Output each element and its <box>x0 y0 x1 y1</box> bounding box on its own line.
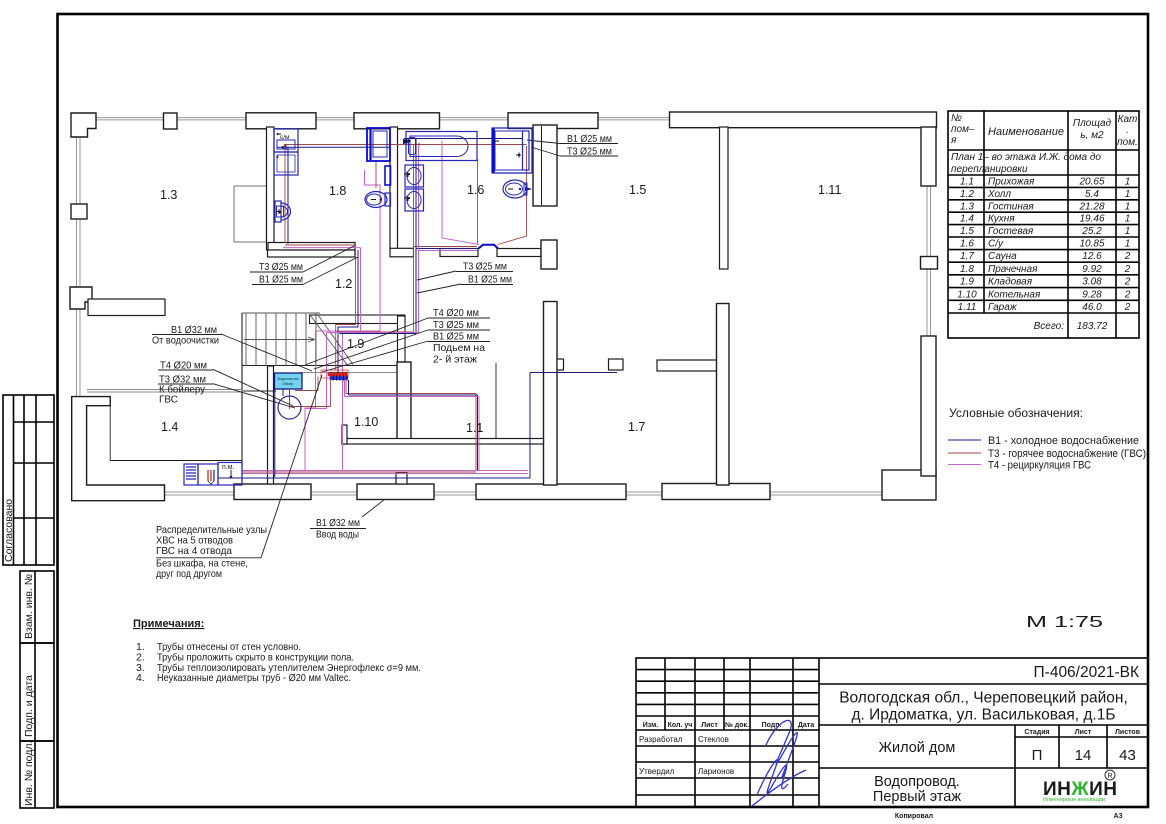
svg-text:12.6: 12.6 <box>1082 251 1102 262</box>
svg-text:ГВС на 4 отвода: ГВС на 4 отвода <box>156 545 232 557</box>
svg-text:1.10: 1.10 <box>957 289 977 300</box>
svg-text:14: 14 <box>1075 747 1092 764</box>
svg-text:19.46: 19.46 <box>1079 214 1104 225</box>
svg-text:1.11: 1.11 <box>958 302 977 313</box>
svg-text:Инженерные инновации: Инженерные инновации <box>1043 797 1105 803</box>
svg-text:В1 Ø25 мм: В1 Ø25 мм <box>468 274 512 286</box>
svg-text:1: 1 <box>1125 177 1131 188</box>
svg-text:Первый этаж: Первый этаж <box>873 789 961 805</box>
svg-text:1.4: 1.4 <box>960 214 974 225</box>
svg-text:ГВС: ГВС <box>159 394 178 406</box>
svg-text:2- й этаж: 2- й этаж <box>433 354 477 366</box>
svg-text:1.6: 1.6 <box>467 183 484 197</box>
svg-text:5.4: 5.4 <box>1085 189 1099 200</box>
svg-text:Ввод воды: Ввод воды <box>316 529 359 541</box>
svg-text:1.1: 1.1 <box>960 177 974 188</box>
svg-text:П-406/2021-ВК: П-406/2021-ВК <box>1034 664 1139 681</box>
svg-text:Кухня: Кухня <box>988 214 1015 225</box>
svg-text:пом–: пом– <box>951 124 975 135</box>
svg-text:М 1:75: М 1:75 <box>1026 614 1103 631</box>
svg-text:3.08: 3.08 <box>1082 277 1102 288</box>
svg-text:№: № <box>951 113 962 124</box>
svg-text:Т3 Ø25 мм: Т3 Ø25 мм <box>463 261 507 273</box>
svg-text:Утвердил: Утвердил <box>639 767 675 776</box>
svg-text:В1 Ø32 мм: В1 Ø32 мм <box>316 517 360 529</box>
svg-text:я: я <box>950 135 957 146</box>
svg-text:1.4: 1.4 <box>161 420 178 434</box>
svg-text:1.8: 1.8 <box>960 264 974 275</box>
svg-text:9.28: 9.28 <box>1082 289 1102 300</box>
svg-text:Площад: Площад <box>1073 118 1112 129</box>
svg-text:Примечания:: Примечания: <box>133 618 204 630</box>
svg-text:2: 2 <box>1124 277 1131 288</box>
svg-text:4.: 4. <box>136 672 145 684</box>
svg-text:Стадия: Стадия <box>1024 729 1049 736</box>
svg-text:пом.: пом. <box>1117 137 1138 148</box>
svg-text:Инв. № подл.: Инв. № подл. <box>23 741 35 806</box>
svg-text:2: 2 <box>1124 264 1131 275</box>
svg-text:9.92: 9.92 <box>1082 264 1102 275</box>
svg-text:П: П <box>1032 747 1043 764</box>
svg-text:Согласовано: Согласовано <box>3 499 15 562</box>
svg-text:Взам. инв. №: Взам. инв. № <box>23 574 35 639</box>
svg-text:Копировал: Копировал <box>895 813 933 820</box>
svg-text:ь, м2: ь, м2 <box>1080 130 1104 141</box>
svg-text:2: 2 <box>1124 302 1131 313</box>
svg-text:Т3 Ø25 мм: Т3 Ø25 мм <box>433 319 479 331</box>
svg-text:д. Ирдоматка, ул. Васильковая,: д. Ирдоматка, ул. Васильковая, д.1Б <box>851 707 1115 724</box>
svg-text:Гейзер: Гейзер <box>282 382 293 386</box>
svg-text:Кладовая: Кладовая <box>988 277 1033 288</box>
svg-text:с/м: с/м <box>280 134 290 141</box>
svg-text:Наименование: Наименование <box>988 126 1064 138</box>
svg-text:Условные обозначения:: Условные обозначения: <box>949 406 1083 420</box>
svg-text:Гостиная: Гостиная <box>988 201 1034 212</box>
svg-text:В1 Ø25 мм: В1 Ø25 мм <box>433 331 479 343</box>
svg-text:1: 1 <box>1125 214 1131 225</box>
svg-text:Водоочистка: Водоочистка <box>278 377 299 381</box>
svg-text:Всего:: Всего: <box>1034 321 1065 332</box>
svg-text:От водоочистки: От водоочистки <box>152 335 219 347</box>
svg-text:Листов: Листов <box>1115 729 1141 736</box>
svg-text:21.28: 21.28 <box>1078 201 1104 212</box>
svg-text:25.2: 25.2 <box>1081 226 1102 237</box>
svg-text:Лист: Лист <box>701 722 718 729</box>
svg-text:Подп. и дата: Подп. и дата <box>23 675 35 737</box>
svg-text:Вологодская обл., Череповецкий: Вологодская обл., Череповецкий район, <box>839 690 1128 707</box>
svg-text:Кат: Кат <box>1118 114 1138 125</box>
svg-text:1.3: 1.3 <box>960 201 974 212</box>
svg-text:46.0: 46.0 <box>1082 302 1102 313</box>
svg-text:Т3 - горячее водоснабжение (ГВ: Т3 - горячее водоснабжение (ГВС) <box>988 448 1146 460</box>
svg-text:Прихожая: Прихожая <box>988 177 1035 188</box>
svg-text:1: 1 <box>1125 239 1131 250</box>
svg-text:10.85: 10.85 <box>1079 239 1104 250</box>
svg-text:2: 2 <box>1124 289 1131 300</box>
svg-text:В1 Ø25 мм: В1 Ø25 мм <box>259 274 303 286</box>
svg-text:1.2: 1.2 <box>960 189 974 200</box>
svg-text:Прачечная: Прачечная <box>988 264 1038 275</box>
svg-text:Изм.: Изм. <box>643 722 659 729</box>
svg-text:№ док.: № док. <box>725 721 749 729</box>
svg-text:1.5: 1.5 <box>629 183 646 197</box>
svg-text:1.8: 1.8 <box>329 184 346 198</box>
svg-text:Ларионов: Ларионов <box>698 767 734 776</box>
svg-text:1: 1 <box>1125 226 1131 237</box>
svg-text:1.9: 1.9 <box>960 277 974 288</box>
svg-text:С/у: С/у <box>988 239 1004 250</box>
svg-text:183.72: 183.72 <box>1077 321 1108 332</box>
svg-text:.: . <box>1126 125 1129 136</box>
svg-text:1: 1 <box>1125 201 1131 212</box>
svg-text:Лист: Лист <box>1075 729 1092 736</box>
svg-text:1.1: 1.1 <box>466 421 483 435</box>
svg-text:1.7: 1.7 <box>628 420 645 434</box>
svg-text:Неуказанные диаметры труб - Ø2: Неуказанные диаметры труб - Ø20 мм Valte… <box>157 672 351 684</box>
svg-text:А3: А3 <box>1114 813 1123 820</box>
svg-text:Кол. уч: Кол. уч <box>668 722 693 729</box>
svg-text:1.7: 1.7 <box>960 251 974 262</box>
svg-text:План 1– во этажа И.Ж. дома: План 1– во этажа И.Ж. дома до <box>951 152 1101 163</box>
svg-text:п.м.: п.м. <box>222 464 235 471</box>
svg-text:43: 43 <box>1119 747 1136 764</box>
svg-text:друг под другом: друг под другом <box>156 568 222 580</box>
svg-text:Стеклов: Стеклов <box>698 735 729 744</box>
svg-text:перепланировки: перепланировки <box>951 164 1028 175</box>
svg-text:Холл: Холл <box>987 189 1011 200</box>
svg-text:2: 2 <box>1124 251 1131 262</box>
svg-text:1.3: 1.3 <box>160 188 177 202</box>
svg-text:R: R <box>1107 773 1112 780</box>
svg-text:Сауна: Сауна <box>988 251 1017 262</box>
svg-text:Гараж: Гараж <box>988 302 1018 313</box>
svg-text:1.5: 1.5 <box>960 226 974 237</box>
svg-text:Дата: Дата <box>798 722 814 729</box>
svg-text:Гостевая: Гостевая <box>988 226 1034 237</box>
svg-text:Водопровод.: Водопровод. <box>874 774 960 790</box>
svg-text:Подьем на: Подьем на <box>433 342 485 354</box>
svg-text:Т4 - рециркуляция ГВС: Т4 - рециркуляция ГВС <box>988 460 1091 472</box>
svg-text:1.2: 1.2 <box>335 277 352 291</box>
svg-text:1.10: 1.10 <box>354 415 378 429</box>
svg-text:В1 - холодное водоснабжение: В1 - холодное водоснабжение <box>988 435 1139 447</box>
svg-text:20.65: 20.65 <box>1078 177 1104 188</box>
svg-text:Т4 Ø20 мм: Т4 Ø20 мм <box>433 307 479 319</box>
svg-text:1.11: 1.11 <box>818 183 841 197</box>
svg-text:Котельная: Котельная <box>988 289 1041 300</box>
svg-text:1: 1 <box>1125 189 1131 200</box>
svg-text:1.6: 1.6 <box>960 239 974 250</box>
svg-text:1.9: 1.9 <box>347 337 364 351</box>
svg-text:Разработал: Разработал <box>639 735 683 744</box>
svg-text:Жилой дом: Жилой дом <box>879 740 956 756</box>
svg-text:Т3 Ø25 мм: Т3 Ø25 мм <box>259 261 303 273</box>
